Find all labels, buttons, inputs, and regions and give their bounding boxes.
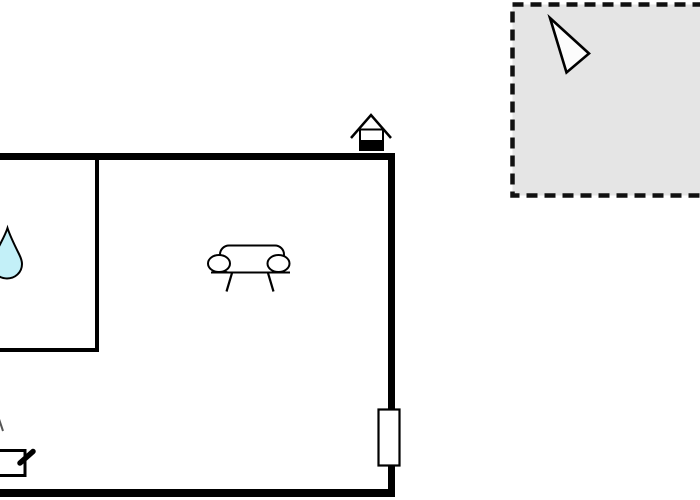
walls (0, 153, 395, 497)
wall-top (0, 153, 395, 160)
window-marker (379, 410, 400, 466)
sofa-leg-left (227, 273, 233, 292)
clipped-edge-fragment (0, 419, 3, 431)
sofa-armrest-left (208, 255, 230, 272)
floorplan-canvas (0, 0, 700, 500)
sofa-leg-right (268, 273, 274, 292)
terrace-dashed-area (513, 5, 700, 196)
house-icon (351, 115, 391, 150)
house-body-filled-half (360, 140, 383, 150)
stove-icon (0, 451, 33, 476)
partition-wall-vertical (95, 153, 99, 352)
terrace-area-rect (513, 5, 700, 196)
sofa-icon (208, 246, 290, 292)
partition-wall-horizontal (0, 348, 99, 352)
sofa-armrest-right (268, 255, 290, 272)
wall-bottom (0, 489, 395, 497)
water-drop-icon (0, 228, 22, 279)
floorplan-svg (0, 0, 700, 500)
